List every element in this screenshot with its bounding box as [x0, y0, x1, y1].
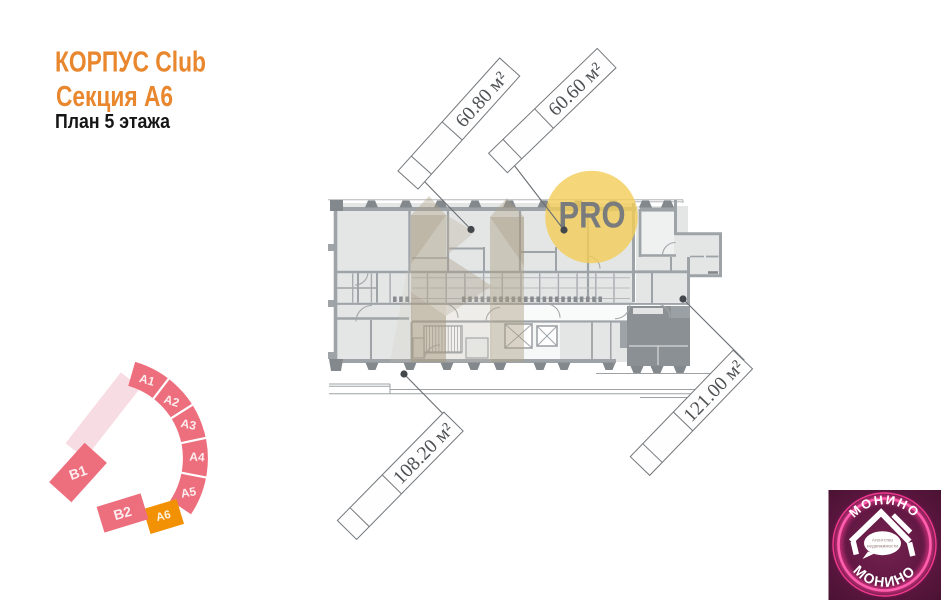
- svg-text:План 5 этажа: План 5 этажа: [55, 110, 171, 133]
- svg-text:Секция А6: Секция А6: [56, 81, 173, 113]
- svg-text:недвижимости: недвижимости: [867, 544, 898, 549]
- svg-text:Агентство: Агентство: [872, 538, 894, 543]
- svg-text:A4: A4: [189, 449, 206, 464]
- svg-text:PRO: PRO: [559, 195, 626, 236]
- svg-text:КОРПУС Club: КОРПУС Club: [55, 47, 206, 79]
- svg-text:108.20 м²: 108.20 м²: [389, 419, 458, 489]
- svg-text:A5: A5: [180, 484, 198, 501]
- svg-text:121.00 м²: 121.00 м²: [680, 357, 748, 427]
